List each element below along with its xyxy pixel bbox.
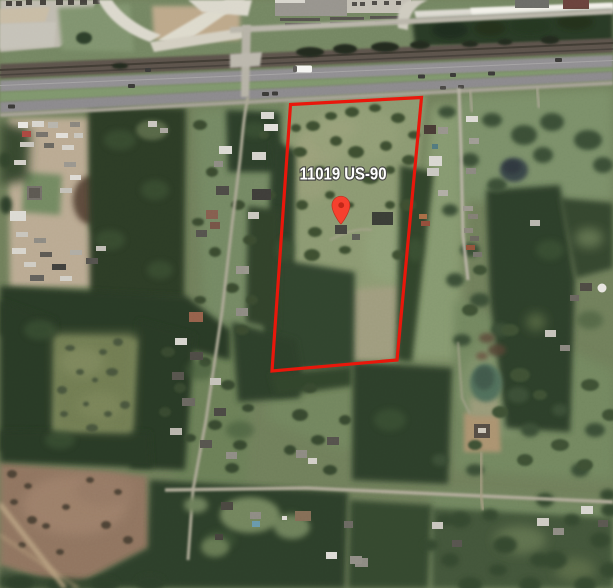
svg-text:11019 US-90: 11019 US-90 xyxy=(300,164,387,184)
